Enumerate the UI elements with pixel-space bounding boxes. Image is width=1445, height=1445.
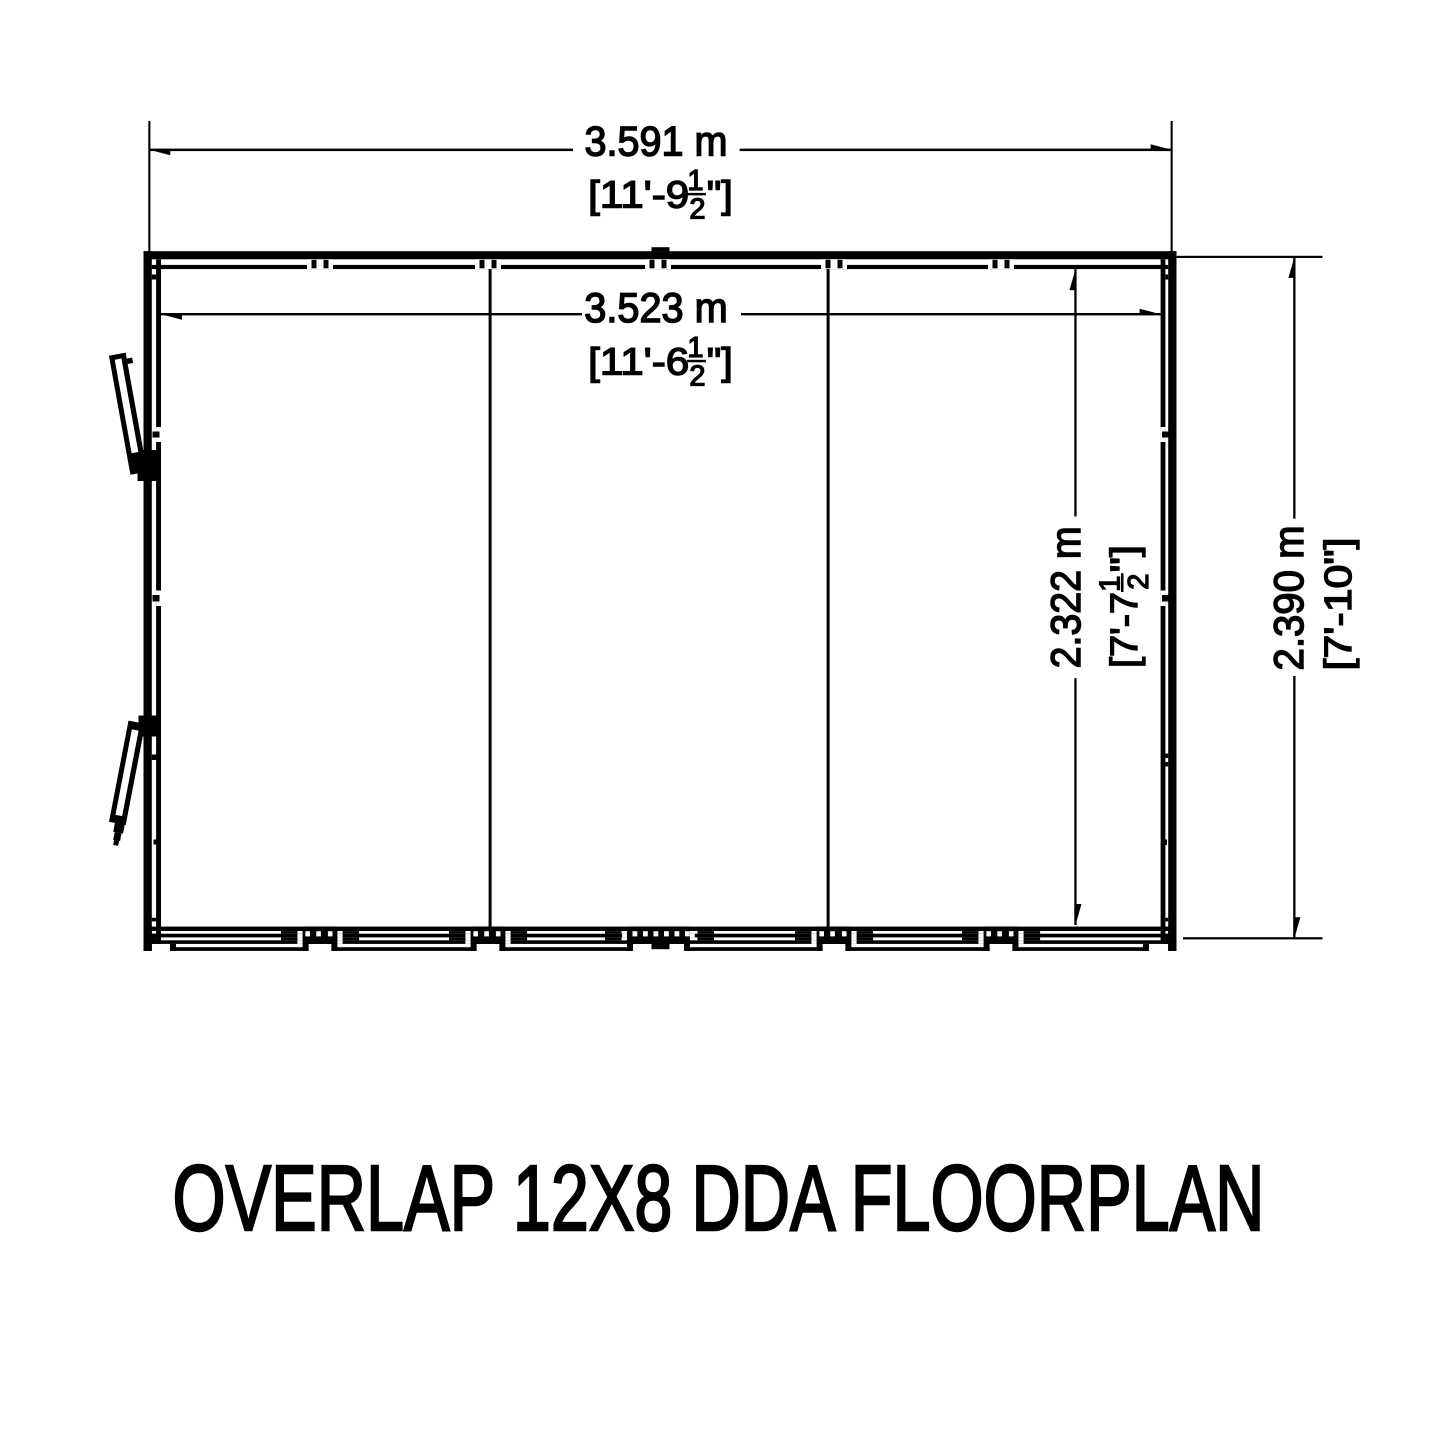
svg-text:"]: "] <box>707 175 733 217</box>
svg-text:1: 1 <box>687 332 703 364</box>
svg-text:2: 2 <box>689 360 705 392</box>
svg-text:[7'-7: [7'-7 <box>1104 592 1146 668</box>
svg-text:OVERLAP 12X8 DDA FLOORPLAN: OVERLAP 12X8 DDA FLOORPLAN <box>173 1146 1265 1250</box>
svg-text:1: 1 <box>1095 576 1127 592</box>
svg-text:2.390 m: 2.390 m <box>1265 526 1312 671</box>
svg-text:2: 2 <box>1123 574 1155 590</box>
svg-text:1: 1 <box>687 165 703 197</box>
svg-text:[11'-6: [11'-6 <box>588 342 689 384</box>
svg-text:"]: "] <box>1104 545 1146 572</box>
svg-text:"]: "] <box>707 342 733 384</box>
svg-text:2: 2 <box>689 194 705 226</box>
svg-text:3.523 m: 3.523 m <box>584 284 728 331</box>
svg-text:3.591 m: 3.591 m <box>585 118 728 165</box>
svg-text:2.322 m: 2.322 m <box>1042 526 1089 668</box>
svg-text:[11'-9: [11'-9 <box>588 175 689 217</box>
svg-text:[7'-10"]: [7'-10"] <box>1318 538 1360 671</box>
